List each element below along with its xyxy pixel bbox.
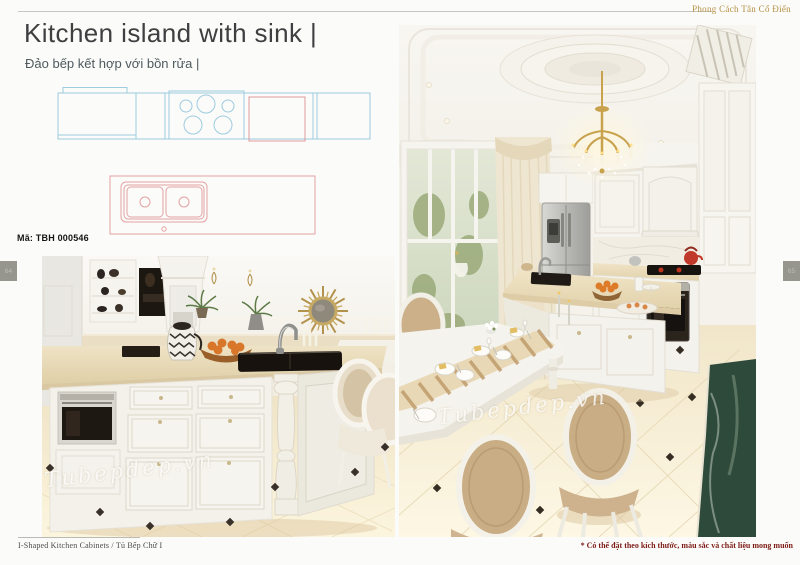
catalog-page: Phong Cách Tân Cổ Điển Kitchen island wi… bbox=[0, 0, 800, 565]
backsplash bbox=[593, 237, 699, 267]
photo-kitchen-overview: Tubepdep.vn bbox=[399, 25, 756, 537]
photo-kitchen-island: Tubepdep.vn bbox=[42, 256, 395, 537]
serving-tray bbox=[617, 302, 657, 314]
cooktop bbox=[647, 265, 701, 275]
brand-tagline: Phong Cách Tân Cổ Điển bbox=[692, 4, 791, 14]
plan-red-module bbox=[249, 97, 305, 141]
refrigerator bbox=[539, 173, 593, 285]
island-sink bbox=[531, 272, 572, 286]
door-handle bbox=[455, 251, 459, 255]
page-number-right: 65 bbox=[783, 261, 800, 281]
kitchen-island-render bbox=[42, 256, 395, 537]
footer-note: * Có thể đặt theo kích thước, màu sắc và… bbox=[581, 541, 793, 550]
kitchen-island bbox=[42, 346, 387, 532]
page-title: Kitchen island with sink | bbox=[24, 18, 317, 49]
ceiling-medallion bbox=[500, 35, 690, 103]
page-number-left: 64 bbox=[0, 261, 17, 281]
shelving-unit bbox=[90, 260, 136, 322]
cooktop-grill bbox=[122, 346, 160, 357]
oven bbox=[56, 392, 120, 494]
kitchen-overview-render bbox=[399, 25, 756, 537]
page-subtitle: Đảo bếp kết hợp với bồn rửa | bbox=[25, 56, 199, 71]
sink bbox=[238, 351, 342, 372]
product-code: Mã: TBH 000546 bbox=[17, 233, 89, 243]
silver-pot bbox=[629, 256, 641, 266]
curtain-tieback bbox=[521, 263, 533, 271]
header-divider bbox=[18, 11, 712, 12]
counter-plan-drawing bbox=[53, 87, 375, 144]
footer-divider bbox=[18, 537, 140, 538]
table-leg bbox=[549, 359, 557, 389]
footer-series: I-Shaped Kitchen Cabinets / Tủ Bếp Chữ I bbox=[18, 541, 162, 550]
sink-plan-drawing bbox=[108, 174, 320, 240]
